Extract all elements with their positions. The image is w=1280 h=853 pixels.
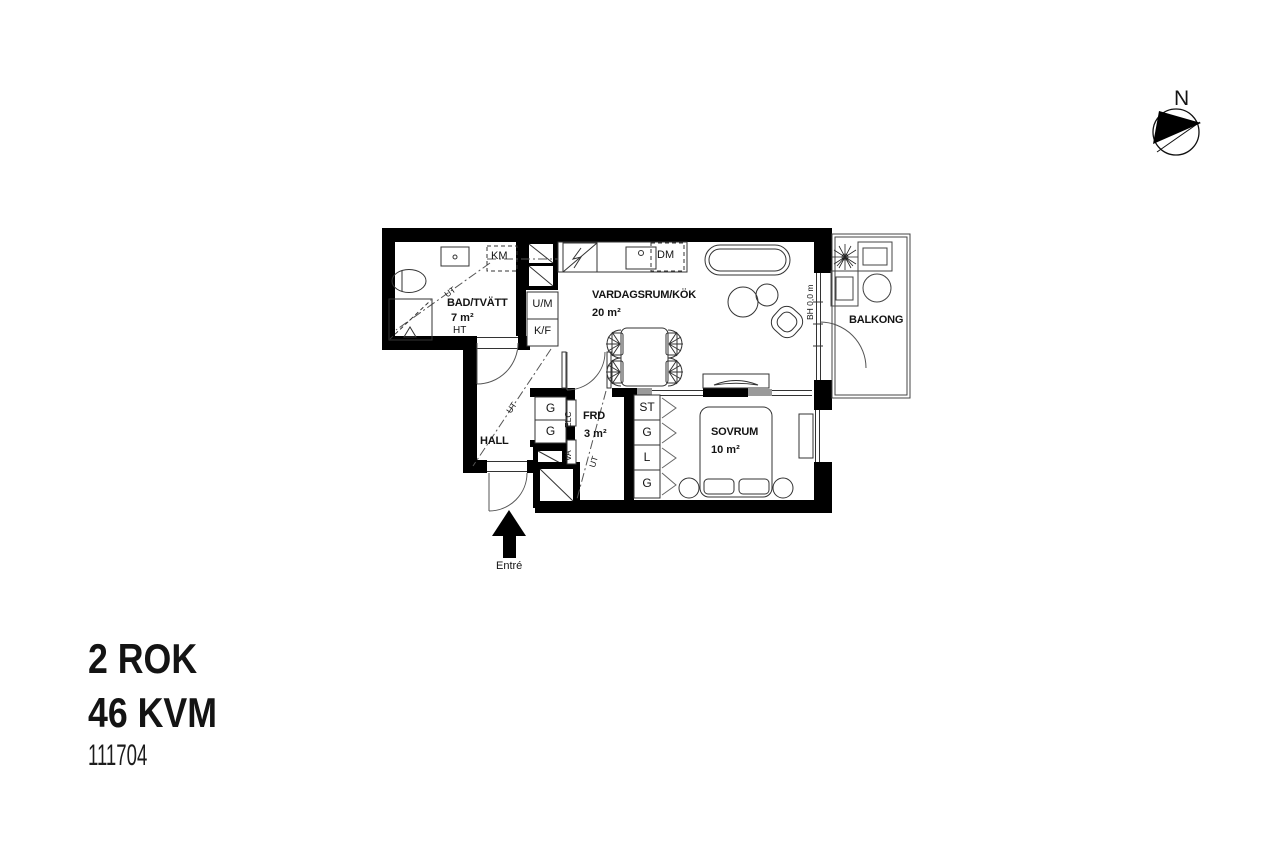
nightstand-left [679,478,699,498]
dining-chairs [606,330,683,386]
water-label: VA [564,450,573,461]
armchair [767,302,807,342]
electrical-label: ELC [564,411,573,428]
compass-north-arrow [1153,111,1201,144]
bedroom-closet-g1: G [634,426,660,438]
living-label: VARDAGSRUM/KÖK [592,290,696,301]
windows [799,273,832,462]
storage-area: 3 m² [584,429,607,440]
entry-arrow [492,510,526,558]
frd-ut-line [577,391,606,499]
bedroom-closet-g2: G [634,477,660,489]
vanity-sink [441,247,469,266]
closet-door-marks [662,398,676,495]
wall-bedroom-top-2 [703,388,748,397]
living-area: 20 m² [592,308,621,319]
storage-label: FRD [583,411,605,422]
micro-label: U/M [527,299,558,310]
balcony-glass-wall [813,273,832,380]
hall-label: HALL [480,436,509,447]
sill-height-label: BH 0,0 m [806,285,815,320]
bathroom-door [477,336,518,384]
hall-closet-2: G [535,425,566,437]
floor-plan-page: BAD/TVÄTT 7 m² HT KM U/M K/F DM VARDAGSR… [0,0,1280,853]
sliding-door-leaf-right [748,389,772,396]
fridge-label: K/F [527,326,558,337]
dining-table [621,328,668,386]
wall-frd-east [624,388,634,502]
bedroom-label: SOVRUM [711,427,758,438]
washer-label: KM [491,251,508,262]
compass-north-label: N [1174,88,1189,109]
tv-bench [703,374,769,388]
bedroom-area: 10 m² [711,445,740,456]
toilet [392,270,426,293]
compass [1153,109,1201,155]
bedroom-closet-l: L [634,451,660,463]
kitchen-shaft [524,240,558,290]
chair [666,358,683,386]
balcony-plant [832,244,858,270]
dishwasher-label: DM [657,250,674,261]
entrance-label: Entré [496,561,522,572]
unit-number: 111704 [88,741,182,771]
bedroom-closet-st: ST [634,401,660,413]
wall-hall-west [463,350,477,472]
bathroom-label: BAD/TVÄTT [447,298,508,309]
entrance-door [487,460,527,511]
wall-top [382,228,832,242]
balcony-label: BALKONG [849,315,903,326]
wall-hall-bottom [463,460,487,473]
title-rooms: 2 ROK [88,638,217,680]
frd-door [562,352,611,390]
wall-bath-bottom [382,336,477,350]
coffee-table-large [728,287,758,317]
wall-right-upper [814,228,832,273]
sofa [705,245,790,275]
balcony-chair-top [858,242,892,271]
title-area: 46 KVM [88,692,217,734]
bedroom-window [799,410,832,462]
wall-bedroom-top-1 [612,388,637,397]
title-block: 2 ROK 46 KVM 111704 [88,638,240,771]
shower [389,299,432,340]
chair [666,330,683,358]
balcony-table [863,274,891,302]
hall-closet-1: G [535,402,566,414]
towel-dryer-label: HT [453,326,466,336]
nightstand-right [773,478,793,498]
entrance-shaft [533,462,580,508]
wall-right-mid [814,380,832,410]
bathroom-area: 7 m² [451,313,474,324]
coffee-table-small [756,284,778,306]
